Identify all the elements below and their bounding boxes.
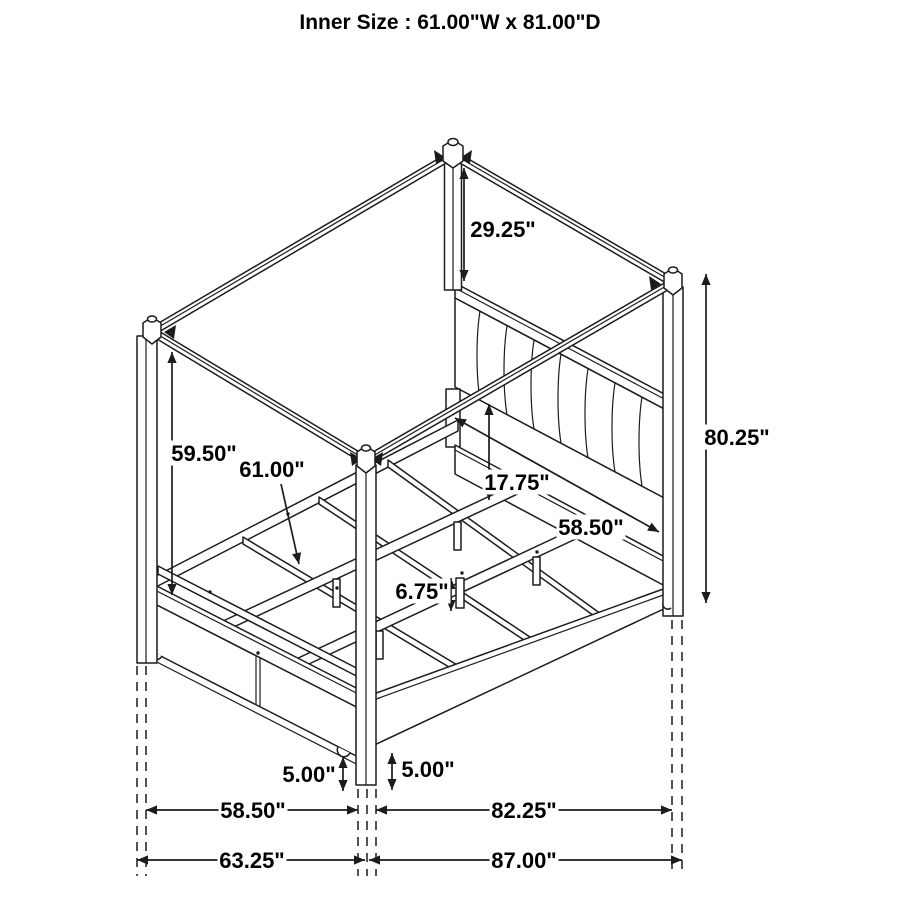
dimension-label: 80.25" [704,425,769,450]
dimension-label: 6.75" [395,579,448,604]
canopy-corner-back [443,139,463,169]
post-right [663,287,683,616]
support-leg [456,578,464,608]
dimension-clearance-right: 5.00" [387,753,456,790]
support-leg [376,631,383,659]
dimension-clearance-left: 5.00" [281,757,348,791]
dimension-label: 61.00" [239,457,304,482]
dimension-label: 58.50" [558,515,623,540]
dimension-overall-length: 87.00" [369,848,682,874]
diagram-title: Inner Size : 61.00"W x 81.00"D [299,11,600,34]
dimension-label: 87.00" [491,848,556,873]
support-leg [533,557,540,585]
canopy-corner-right [664,267,682,295]
post-back [445,158,462,290]
dimension-side-length-inner: 82.25" [376,798,672,824]
post-left [137,336,157,663]
post-front [356,465,376,785]
dimension-label: 5.00" [282,762,335,787]
dimension-label: 82.25" [491,798,556,823]
dimension-label: 58.50" [220,798,285,823]
support-leg [454,522,461,550]
support-leg [333,579,340,607]
bed-canopy-dimension-diagram: Inner Size : 61.00"W x 81.00"D [0,0,900,900]
dimension-label: 63.25" [219,848,284,873]
dimension-label: 17.75" [484,470,549,495]
canopy-corner-left [143,316,161,344]
canopy-corner-front [357,445,375,473]
bed-dimension-diagram-page: Inner Size : 61.00"W x 81.00"D [0,0,900,900]
dimension-label: 5.00" [401,757,454,782]
dimension-footboard-width-overall: 63.25" [137,848,365,874]
dimension-label: 29.25" [470,217,535,242]
dimension-label: 59.50" [171,441,236,466]
dimension-footboard-width-inner: 58.50" [146,798,358,824]
dimension-overall-height: 80.25" [701,274,771,603]
